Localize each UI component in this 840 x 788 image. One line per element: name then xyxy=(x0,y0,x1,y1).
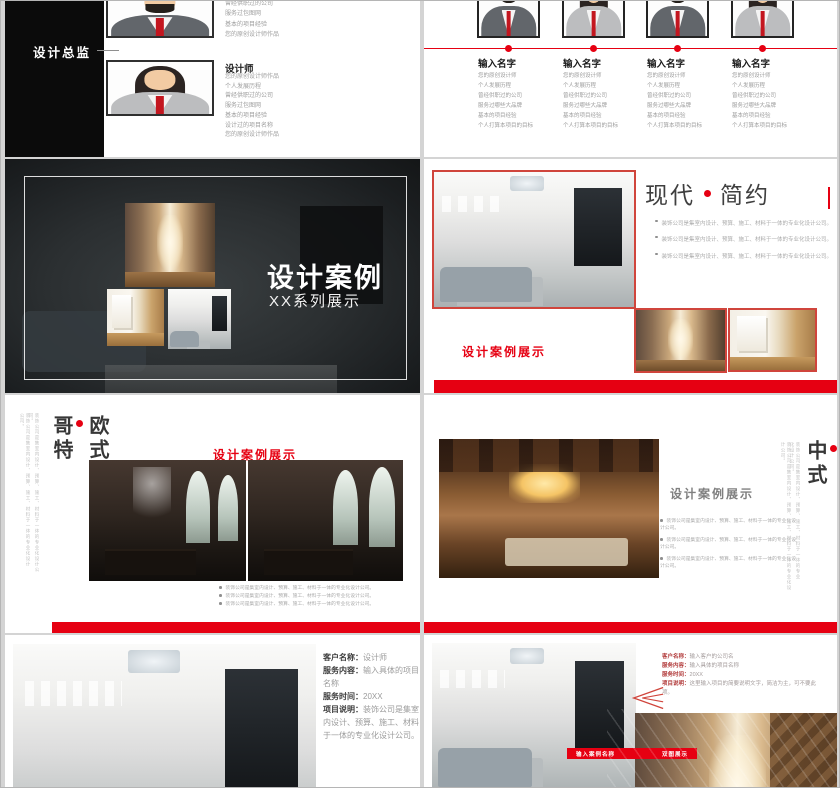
member-photo-frame xyxy=(731,1,794,38)
bullet-text: 装饰公司是集室内设计、预算、施工、材料于一体的专业化设计公司。 xyxy=(226,602,375,607)
list-item: 个人打算本项目的目标 xyxy=(732,121,787,131)
window-shape xyxy=(333,470,358,545)
bullet-item: 装饰公司是集室内设计、预算、施工、材料于一体的专业化设计公司。 xyxy=(660,518,798,532)
female-avatar-illustration xyxy=(564,1,623,36)
info-label: 客户名称： xyxy=(323,653,363,662)
male-avatar-illustration xyxy=(479,1,538,36)
red-dot-icon xyxy=(830,445,837,452)
info-label: 项目说明： xyxy=(662,681,690,687)
bullet-text: 装饰公司是集室内设计、预算、施工、材料于一体的专业化设计公司。 xyxy=(662,221,833,227)
photo-warm-hallway xyxy=(634,308,727,373)
list-item: 服务过包图网 xyxy=(225,102,279,112)
list-item: 服务过哪些大品牌 xyxy=(563,101,618,111)
photo-gothic-interior xyxy=(248,460,403,581)
list-item: 服务过包图网 xyxy=(225,9,279,19)
caption-red: 设计案例展示 xyxy=(462,343,546,360)
team-member: 输入名字 您的原创设计师 个人发展历程 曾经供职过的公司 服务过哪些大品牌 基本… xyxy=(562,1,644,157)
list-item: 您的原创设计师 xyxy=(732,71,787,81)
bullet-dot-icon xyxy=(660,538,663,541)
bullet-dot-icon xyxy=(655,220,658,223)
member-name: 输入名字 xyxy=(732,56,770,70)
bullet-text: 装饰公司是集室内设计、预算、施工、材料于一体的专业化设计公司。 xyxy=(662,237,833,243)
bullet-text: 装饰公司是集室内设计、预算、施工、材料于一体的专业化设计公司。 xyxy=(226,586,375,591)
info-label: 服务内容： xyxy=(662,663,690,669)
vertical-title: 传统 中式 xyxy=(801,440,837,488)
red-bottom-bar xyxy=(424,622,837,633)
list-item: 服务过哪些大品牌 xyxy=(478,101,533,111)
info-label: 项目说明： xyxy=(323,705,363,714)
director-photo-frame xyxy=(106,1,214,38)
wall-frames-shape xyxy=(440,670,505,688)
list-item: 曾经供职过的公司 xyxy=(225,92,279,102)
slide-thumb-showcase: 客户名称：输入客户的公司名 服务内容：输入具体的项目名称 服务时间：20XX 项… xyxy=(424,635,837,788)
bullet-text: 装饰公司是集室内设计、预算、施工、材料于一体的专业化设计公司。 xyxy=(660,557,796,569)
bullet-item: 装饰公司是集室内设计、预算、施工、材料于一体的专业化设计公司。 xyxy=(655,245,832,263)
list-item: 您的原创设计师 xyxy=(563,71,618,81)
list-item: 设计过的项目名称 xyxy=(225,122,279,132)
male-avatar-illustration xyxy=(648,1,707,36)
member-list: 您的原创设计师 个人发展历程 曾经供职过的公司 服务过哪些大品牌 基本的项目经验… xyxy=(478,71,533,131)
red-dot-icon xyxy=(76,420,83,427)
red-bottom-bar xyxy=(434,380,837,393)
list-item: 基本的项目经验 xyxy=(478,111,533,121)
dash-divider xyxy=(97,50,119,51)
bullet-item: 装饰公司是集室内设计、预算、施工、材料于一体的专业化设计公司。 xyxy=(219,585,374,592)
case-info-rows: 客户名称：输入客户的公司名 服务内容：输入具体的项目名称 服务时间：20XX 项… xyxy=(662,653,822,698)
info-row: 客户名称：输入客户的公司名 xyxy=(662,653,822,662)
face-shape xyxy=(144,70,175,90)
title-word-right: 简约 xyxy=(720,176,770,210)
info-row: 客户名称：设计师 xyxy=(323,651,420,664)
wooden-stairs-shape xyxy=(770,713,837,788)
case-name-button[interactable]: 输入案例名称 xyxy=(576,750,615,758)
info-label: 客户名称： xyxy=(662,654,690,660)
bullet-dot-icon xyxy=(660,557,663,560)
section-title: 现代 简约 xyxy=(645,176,770,210)
ceiling-light-shape xyxy=(510,648,545,665)
designer-photo-frame xyxy=(106,60,214,116)
project-info-rows: 客户名称：设计师 服务内容：输入具体的项目名称 服务时间：20XX 项目说明：装… xyxy=(323,651,420,742)
bullet-dot-icon xyxy=(655,236,658,239)
team-member: 输入名字 您的原创设计师 个人发展历程 曾经供职过的公司 服务过哪些大品牌 基本… xyxy=(731,1,813,157)
info-row: 服务时间：20XX xyxy=(662,671,822,680)
bullet-text: 装饰公司是集室内设计、预算、施工、材料于一体的专业化设计公司。 xyxy=(660,519,796,531)
member-photo-frame xyxy=(562,1,625,38)
slide-cover: 设计案例 XX系列展示 xyxy=(5,159,420,393)
tie-shape xyxy=(675,11,680,36)
info-value: 20XX xyxy=(363,692,383,701)
chandelier-glow-shape xyxy=(133,467,171,523)
member-name: 输入名字 xyxy=(563,56,601,70)
black-side-panel xyxy=(5,1,104,157)
list-item: 个人发展历程 xyxy=(478,81,533,91)
slide-thumb-cover: 设计案例 XX系列展示 xyxy=(5,159,420,393)
wall-frames-shape xyxy=(442,196,506,212)
vertical-title: 欧式 哥特 xyxy=(47,415,112,463)
window-shape xyxy=(218,475,238,542)
info-label: 服务时间： xyxy=(323,692,363,701)
team-member: 输入名字 您的原创设计师 个人发展历程 曾经供职过的公司 服务过哪些大品牌 基本… xyxy=(646,1,728,157)
member-list: 您的原创设计师 个人发展历程 曾经供职过的公司 服务过哪些大品牌 基本的项目经验… xyxy=(732,71,787,131)
slide-gothic: 装饰公司是集室内设计、预算、施工、材料于一体的专业化设计公司。 装饰公司是集室内… xyxy=(5,395,420,633)
beard-shape xyxy=(669,1,686,3)
tie-shape xyxy=(760,11,765,36)
bullet-text: 装饰公司是集室内设计、预算、施工、材料于一体的专业化设计公司。 xyxy=(660,538,796,550)
slide-thumb-modern: 现代 简约 装饰公司是集室内设计、预算、施工、材料于一体的专业化设计公司。 装饰… xyxy=(424,159,837,393)
title-word-right: 中式 xyxy=(804,440,826,488)
window-shape xyxy=(186,471,210,544)
list-item: 曾经供职过的公司 xyxy=(647,91,702,101)
slide-director: 设计总监 曾经供职过的公司 服务过包图网 基本的项目经验 您的原创设计师作品 xyxy=(5,1,420,157)
vertical-side-text: 装饰公司是集室内设计、预算、施工、材料于一体的专业化设计公司。 xyxy=(28,413,40,581)
ceiling-light-shape xyxy=(510,176,544,191)
slide-thumb-team: 输入名字 您的原创设计师 个人发展历程 曾经供职过的公司 服务过哪些大品牌 基本… xyxy=(424,1,837,157)
list-item: 基本的项目经验 xyxy=(225,112,279,122)
list-item: 个人发展历程 xyxy=(732,81,787,91)
ceiling-light-shape xyxy=(128,650,180,673)
beard-shape xyxy=(145,4,174,13)
list-item: 曾经供职过的公司 xyxy=(732,91,787,101)
info-label: 服务时间： xyxy=(662,672,690,678)
female-avatar-illustration xyxy=(108,62,212,114)
list-item: 基本的项目经验 xyxy=(647,111,702,121)
tie-shape xyxy=(506,11,511,36)
photo-warm-hallway xyxy=(125,203,215,287)
timeline-dot xyxy=(759,45,766,52)
bullet-text: 装饰公司是集室内设计、预算、施工、材料于一体的专业化设计公司。 xyxy=(226,594,375,599)
timeline-dot xyxy=(590,45,597,52)
caption-gray: 设计案例展示 xyxy=(670,485,754,502)
ppt-template-preview-grid: 设计总监 曾经供职过的公司 服务过包图网 基本的项目经验 您的原创设计师作品 xyxy=(0,0,840,788)
slide-thumb-director: 设计总监 曾经供职过的公司 服务过包图网 基本的项目经验 您的原创设计师作品 xyxy=(5,1,420,157)
info-row: 服务内容：输入具体的项目名称 xyxy=(323,664,420,690)
red-bottom-bar xyxy=(52,622,420,633)
bullet-item: 装饰公司是集室内设计、预算、施工、材料于一体的专业化设计公司。 xyxy=(660,537,798,551)
slide-thumb-gothic: 装饰公司是集室内设计、预算、施工、材料于一体的专业化设计公司。 装饰公司是集室内… xyxy=(5,395,420,633)
director-profile-list: 曾经供职过的公司 服务过包图网 基本的项目经验 您的原创设计师作品 xyxy=(225,1,279,41)
photo-white-staircase xyxy=(107,289,164,346)
tie-shape xyxy=(156,18,164,36)
tie-shape xyxy=(156,96,164,114)
bullet-dot-icon xyxy=(219,602,222,605)
vertical-side-text: 装饰公司是集室内设计、预算、施工、材料于一体的专业化设计公司。 xyxy=(789,442,801,580)
bullet-item: 装饰公司是集室内设计、预算、施工、材料于一体的专业化设计公司。 xyxy=(219,601,374,608)
bullet-item: 装饰公司是集室内设计、预算、施工、材料于一体的专业化设计公司。 xyxy=(219,593,374,600)
member-name: 输入名字 xyxy=(647,56,685,70)
title-word-left: 欧式 xyxy=(86,415,108,463)
list-item: 服务过哪些大品牌 xyxy=(647,101,702,111)
bullet-dot-icon xyxy=(219,594,222,597)
beard-shape xyxy=(500,1,517,3)
list-item: 个人打算本项目的目标 xyxy=(563,121,618,131)
info-label: 服务内容： xyxy=(323,666,363,675)
team-member: 输入名字 您的原创设计师 个人发展历程 曾经供职过的公司 服务过哪些大品牌 基本… xyxy=(477,1,559,157)
bullet-dot-icon xyxy=(655,253,658,256)
slide-thumb-project-info: 客户名称：设计师 服务内容：输入具体的项目名称 服务时间：20XX 项目说明：装… xyxy=(5,635,420,788)
bullet-dot-icon xyxy=(219,586,222,589)
member-list: 您的原创设计师 个人发展历程 曾经供职过的公司 服务过哪些大品牌 基本的项目经验… xyxy=(647,71,702,131)
title-word-left: 现代 xyxy=(645,176,695,210)
slide-chinese: 设计案例展示 装饰公司是集室内设计、预算、施工、材料于一体的专业化设计公司。 装… xyxy=(424,395,837,633)
slide-team: 输入名字 您的原创设计师 个人发展历程 曾经供职过的公司 服务过哪些大品牌 基本… xyxy=(424,1,837,157)
slide-project-info: 客户名称：设计师 服务内容：输入具体的项目名称 服务时间：20XX 项目说明：装… xyxy=(5,635,420,788)
list-item: 曾经供职过的公司 xyxy=(225,1,279,9)
slide-modern: 现代 简约 装饰公司是集室内设计、预算、施工、材料于一体的专业化设计公司。 装饰… xyxy=(424,159,837,393)
photo-modern-living-room xyxy=(432,643,636,788)
info-row: 项目说明：这里输入项目的简要说明文字，简洁为主，可不要此项。 xyxy=(662,680,822,698)
tie-shape xyxy=(591,11,596,36)
photo-white-staircase xyxy=(728,308,817,372)
list-item: 服务过哪些大品牌 xyxy=(732,101,787,111)
red-accent-line xyxy=(828,187,830,209)
photo-modern-living-room xyxy=(168,289,231,349)
list-item: 您的原创设计师 xyxy=(478,71,533,81)
slide-showcase: 客户名称：输入客户的公司名 服务内容：输入具体的项目名称 服务时间：20XX 项… xyxy=(424,635,837,788)
list-item: 基本的项目经验 xyxy=(732,111,787,121)
info-value: 20XX xyxy=(690,672,703,678)
female-avatar-illustration xyxy=(733,1,792,36)
member-list: 您的原创设计师 个人发展历程 曾经供职过的公司 服务过哪些大品牌 基本的项目经验… xyxy=(563,71,618,131)
photo-modern-living-room xyxy=(432,170,636,309)
male-avatar-illustration xyxy=(108,1,212,36)
wall-frames-shape xyxy=(25,681,122,706)
cover-subtitle: XX系列展示 xyxy=(269,290,361,311)
list-item: 个人发展历程 xyxy=(563,81,618,91)
list-item: 基本的项目经验 xyxy=(225,20,279,30)
list-item: 个人打算本项目的目标 xyxy=(647,121,702,131)
list-item: 您的原创设计师 xyxy=(647,71,702,81)
photo-gothic-interior xyxy=(89,460,246,581)
info-value: 输入具体的项目名称 xyxy=(690,663,740,669)
bullet-dot-icon xyxy=(660,519,663,522)
red-label-bar: 输入案例名称 双图展示 xyxy=(567,748,697,759)
seating-shape xyxy=(505,538,628,566)
bullet-item: 装饰公司是集室内设计、预算、施工、材料于一体的专业化设计公司。 xyxy=(660,556,798,570)
info-row: 服务时间：20XX xyxy=(323,690,420,703)
photo-chinese-interior xyxy=(439,439,659,578)
info-row: 服务内容：输入具体的项目名称 xyxy=(662,662,822,671)
designer-profile-list: 您的原创设计师作品 个人发展历程 曾经供职过的公司 服务过包图网 基本的项目经验… xyxy=(225,73,279,141)
info-value: 输入客户的公司名 xyxy=(690,654,734,660)
timeline-dot xyxy=(505,45,512,52)
title-word-right: 哥特 xyxy=(50,415,72,463)
bullet-item: 装饰公司是集室内设计、预算、施工、材料于一体的专业化设计公司。 xyxy=(655,228,832,246)
info-row: 项目说明：装饰公司是集室内设计、预算、施工、材料于一体的专业化设计公司。 xyxy=(323,703,420,742)
list-item: 您的原创设计师作品 xyxy=(225,73,279,83)
info-value: 设计师 xyxy=(363,653,387,662)
list-item: 基本的项目经验 xyxy=(563,111,618,121)
timeline-dot xyxy=(674,45,681,52)
list-item: 曾经供职过的公司 xyxy=(563,91,618,101)
window-shape xyxy=(369,467,395,547)
photo-modern-living-room xyxy=(13,644,316,788)
left-arrow-icon xyxy=(628,684,666,712)
list-item: 曾经供职过的公司 xyxy=(478,91,533,101)
panel-title: 设计总监 xyxy=(33,42,91,61)
member-name: 输入名字 xyxy=(478,56,516,70)
member-photo-frame xyxy=(477,1,540,38)
slide-thumb-chinese: 设计案例展示 装饰公司是集室内设计、预算、施工、材料于一体的专业化设计公司。 装… xyxy=(424,395,837,633)
member-photo-frame xyxy=(646,1,709,38)
list-item: 您的原创设计师作品 xyxy=(225,131,279,141)
list-item: 个人打算本项目的目标 xyxy=(478,121,533,131)
list-item: 个人发展历程 xyxy=(647,81,702,91)
effect-display-button[interactable]: 双图展示 xyxy=(662,750,688,758)
list-item: 您的原创设计师作品 xyxy=(225,30,279,40)
red-dot-icon xyxy=(704,190,711,197)
list-item: 个人发展历程 xyxy=(225,83,279,93)
bullet-text: 装饰公司是集室内设计、预算、施工、材料于一体的专业化设计公司。 xyxy=(662,254,833,260)
